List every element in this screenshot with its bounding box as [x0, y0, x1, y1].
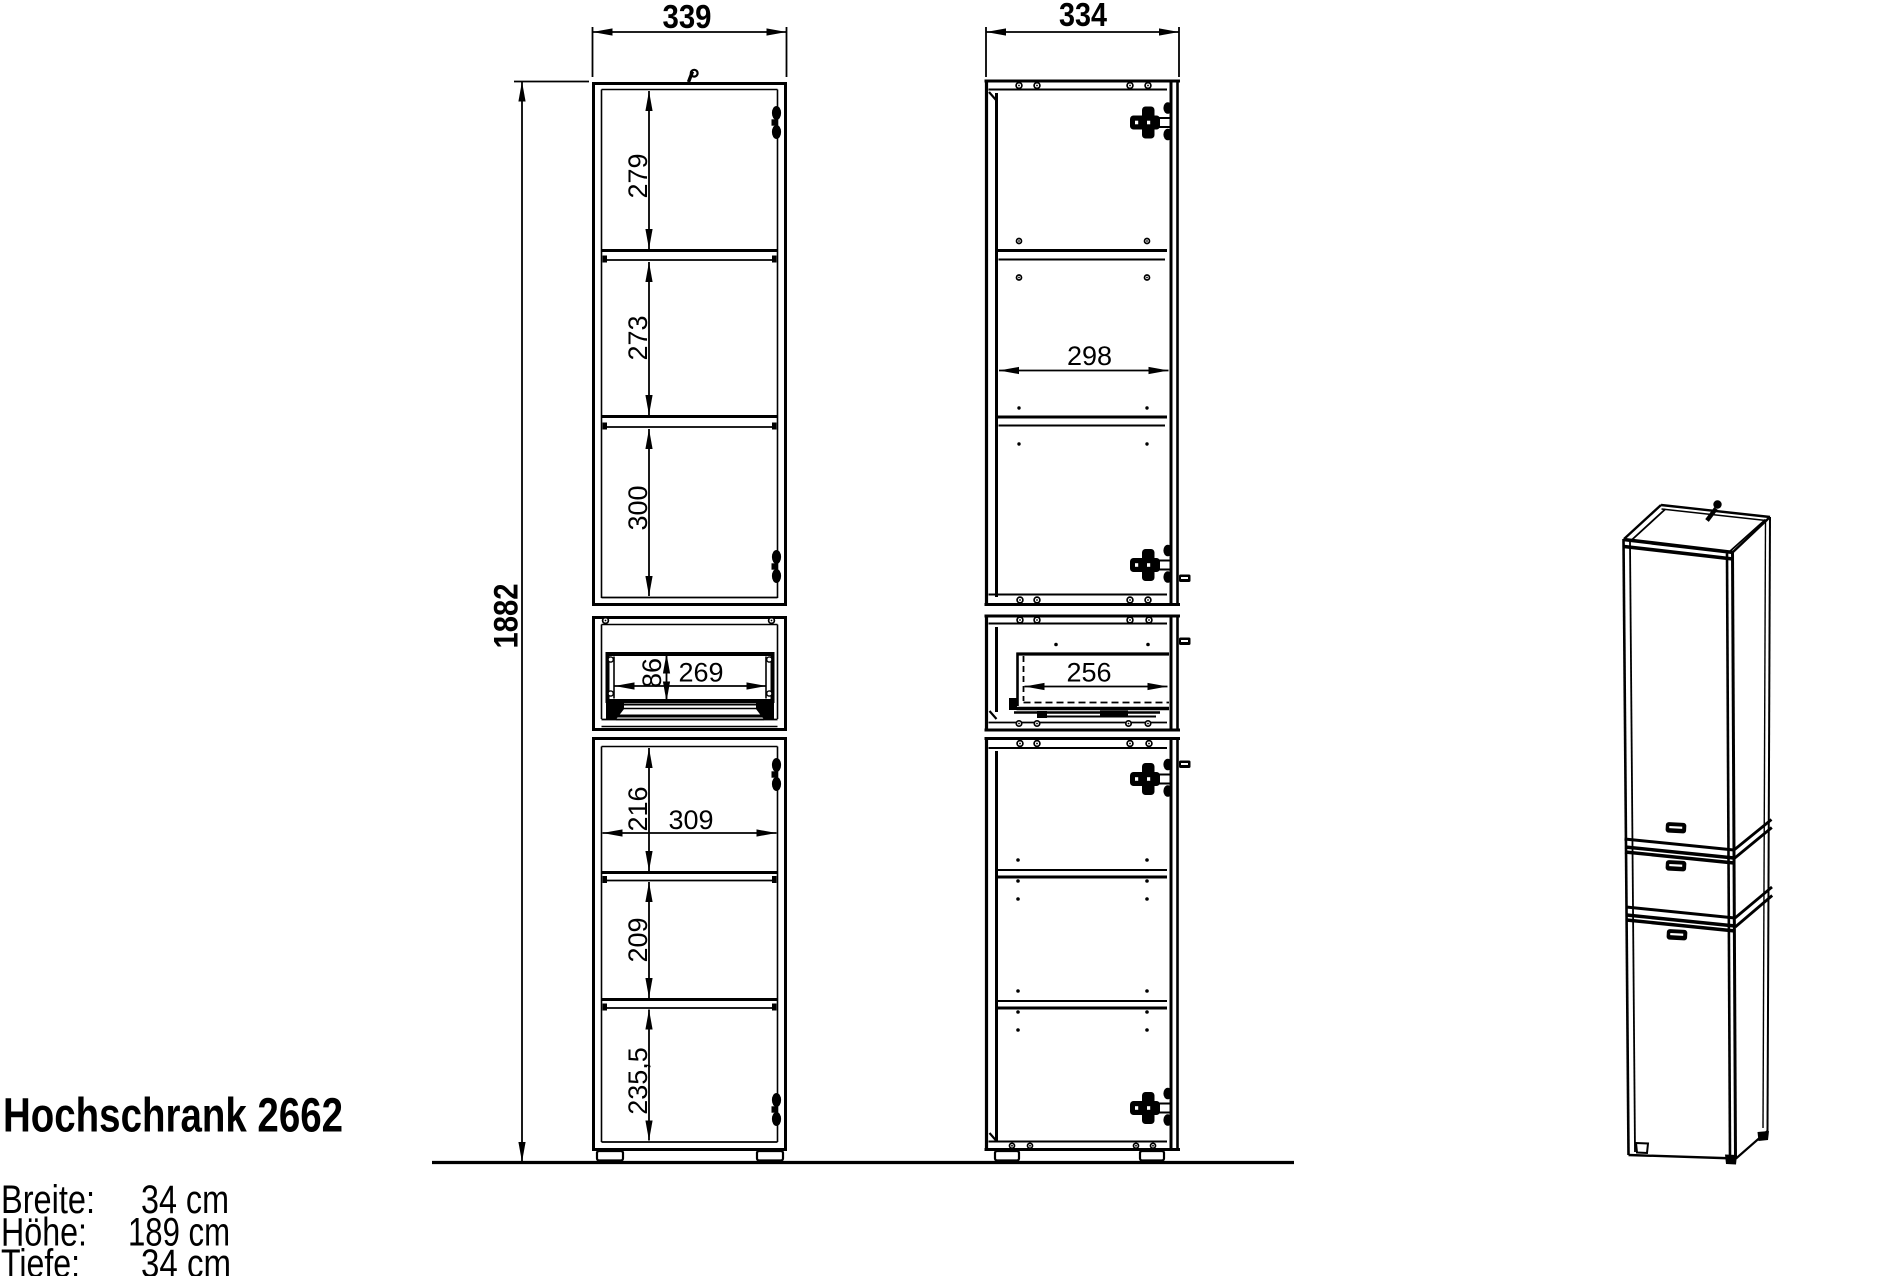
svg-text:34 cm: 34 cm	[141, 1242, 231, 1276]
svg-text:1882: 1882	[488, 584, 526, 649]
svg-text:269: 269	[678, 658, 723, 688]
svg-text:216: 216	[623, 786, 653, 831]
svg-text:Tiefe:: Tiefe:	[1, 1242, 80, 1276]
svg-text:334: 334	[1059, 0, 1108, 33]
svg-text:300: 300	[623, 485, 653, 530]
svg-text:256: 256	[1066, 658, 1111, 688]
svg-text:Hochschrank 2662: Hochschrank 2662	[3, 1090, 343, 1143]
svg-text:209: 209	[623, 917, 653, 962]
svg-text:86: 86	[637, 658, 667, 688]
svg-text:279: 279	[623, 153, 653, 198]
svg-text:298: 298	[1067, 341, 1112, 371]
svg-text:339: 339	[663, 0, 712, 35]
svg-text:309: 309	[668, 805, 713, 835]
svg-text:235,5: 235,5	[623, 1047, 653, 1115]
svg-text:273: 273	[623, 315, 653, 360]
